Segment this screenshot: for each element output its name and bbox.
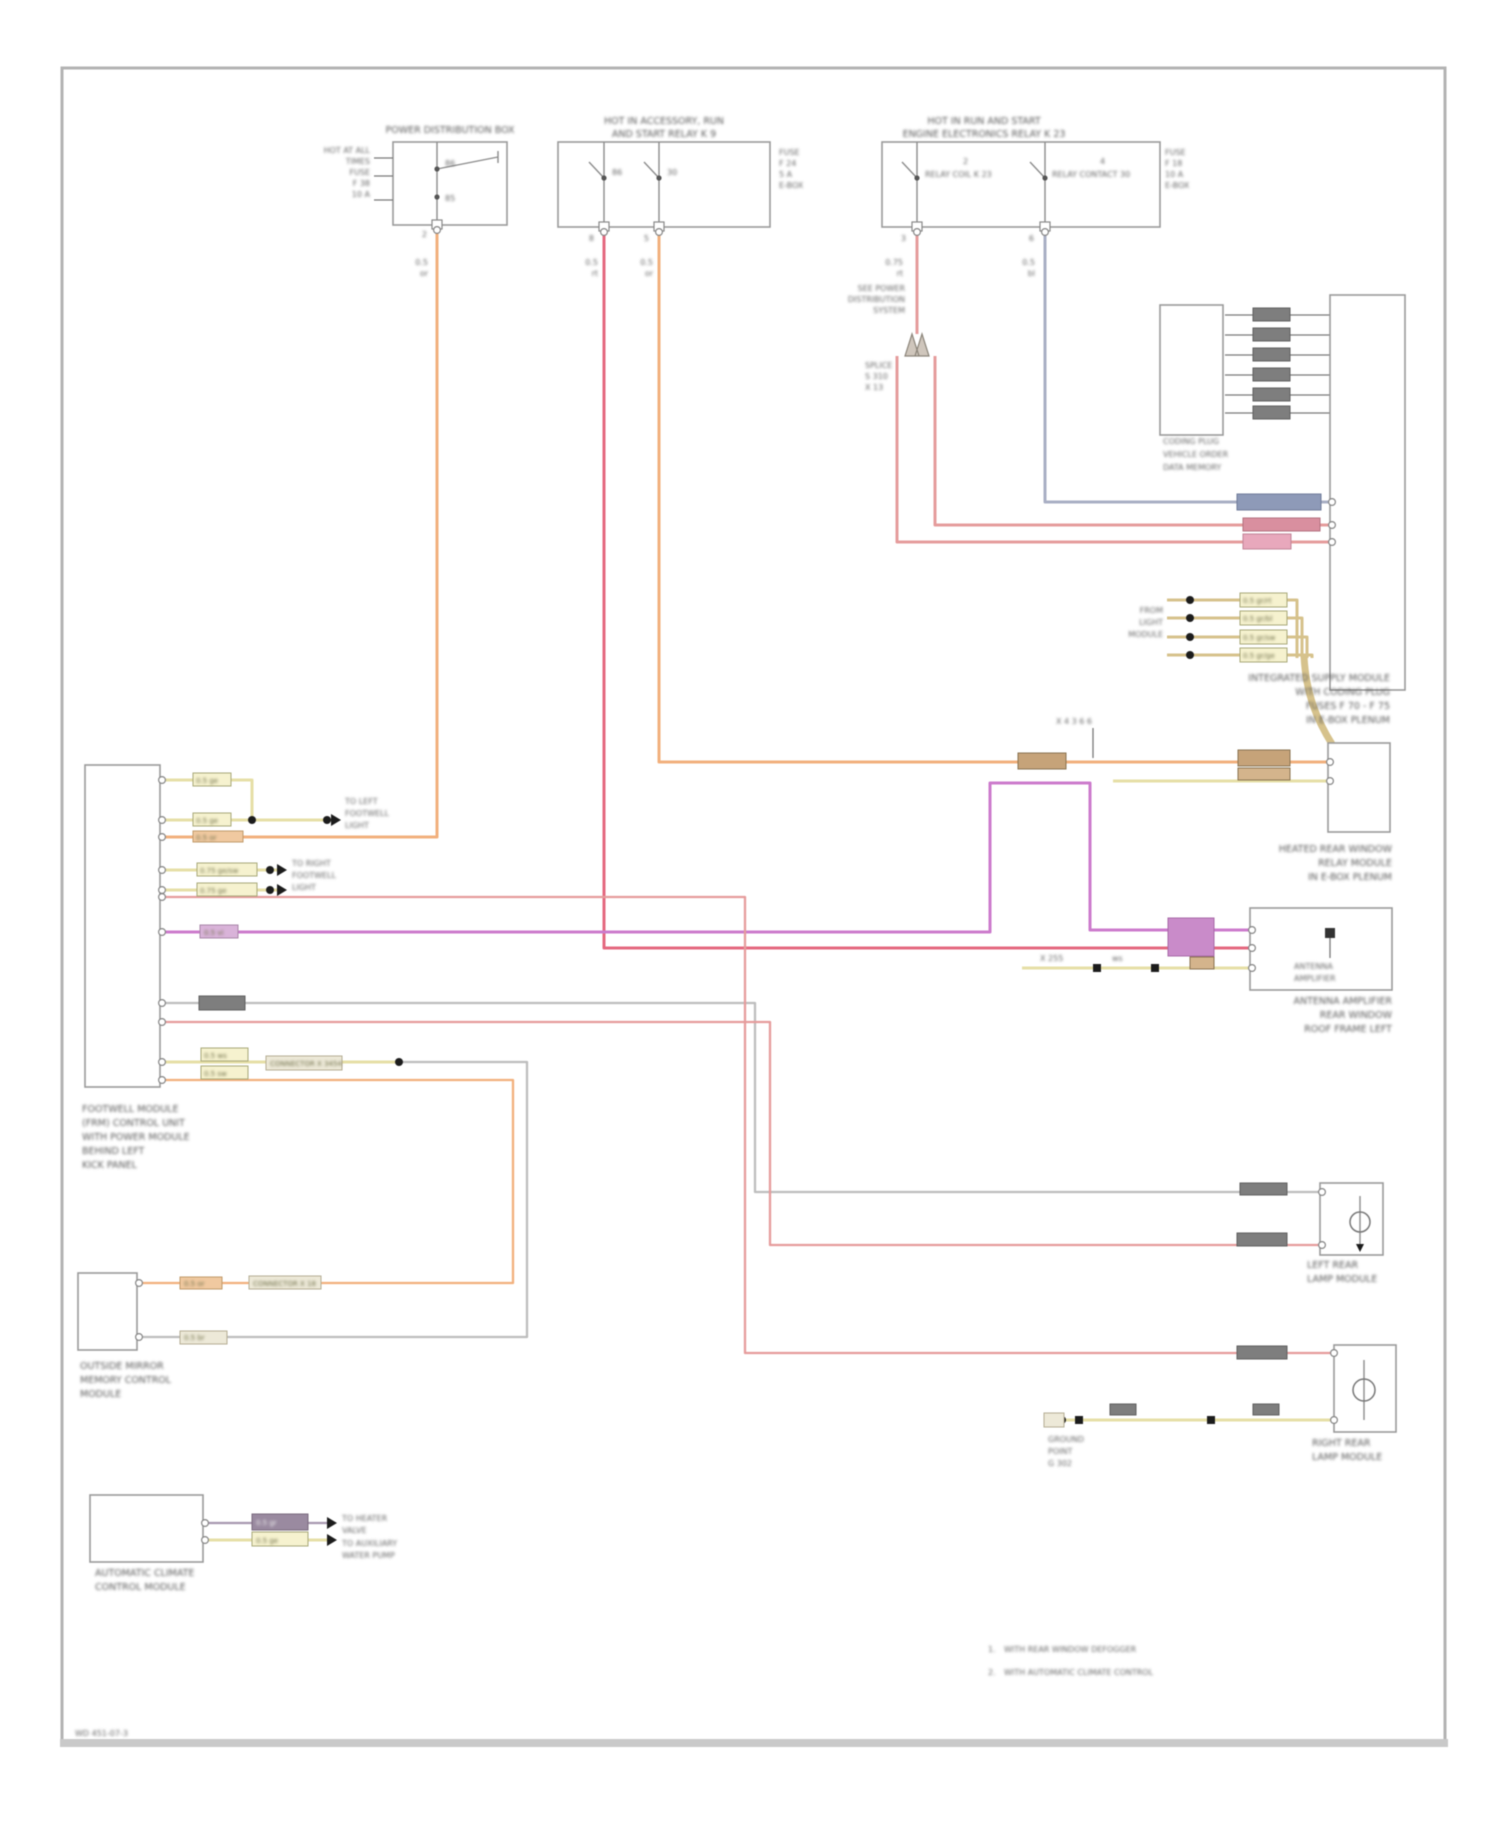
modE-caption: RELAY MODULE xyxy=(1318,858,1392,869)
wire-code-box-tan xyxy=(1238,768,1290,780)
modE-connector-label: X 4 3 6 6 xyxy=(1056,717,1092,726)
wire-gauge: 0.5 xyxy=(1022,258,1035,267)
coding-row-box xyxy=(1253,308,1290,321)
ecu-caption: FOOTWELL MODULE xyxy=(82,1104,178,1115)
integrated-supply-module xyxy=(1330,295,1405,690)
ecu-caption: (FRM) CONTROL UNIT xyxy=(82,1118,185,1129)
splice-label: X 13 xyxy=(865,383,883,392)
modH-caption: CONTROL MODULE xyxy=(95,1582,186,1593)
boxA-terminal-label: 85 xyxy=(445,194,455,203)
ecu-dest-label: FOOTWELL xyxy=(292,871,337,880)
ecu-caption: BEHIND LEFT xyxy=(82,1146,144,1157)
wire-code: 0.5 ge xyxy=(196,777,218,785)
relayC-right-label: FUSE xyxy=(1165,148,1186,157)
mirror-memory-module-box xyxy=(78,1273,137,1350)
ecu-dest-label: TO RIGHT xyxy=(291,859,331,868)
wire-code-box xyxy=(1253,1404,1279,1415)
relayC-ref-label: SYSTEM xyxy=(873,306,905,315)
wire-color: or xyxy=(645,269,654,278)
power-distribution-box xyxy=(393,142,507,225)
boxA-contact-dot1 xyxy=(434,166,439,171)
wire-color: bl xyxy=(1028,269,1035,278)
left-rear-lamp-module xyxy=(1320,1183,1383,1255)
modH-dest-label: WATER PUMP xyxy=(342,1551,395,1560)
engine-electronics-relay-box xyxy=(882,142,1160,227)
modH-caption: AUTOMATIC CLIMATE xyxy=(95,1568,194,1579)
wire-code: 0.5 gr/sw xyxy=(1243,634,1276,642)
wire-gauge: 0.5 xyxy=(585,258,598,267)
wire-code-box-blue xyxy=(1237,494,1321,510)
wire-orange-boxA-to-ecu xyxy=(162,231,437,837)
relayC-dot2 xyxy=(1042,175,1047,180)
legend-text: WITH REAR WINDOW DEFOGGER xyxy=(1004,1645,1137,1654)
wire-magenta-ecu-to-antenna xyxy=(162,783,1252,932)
relayB-terminal: 30 xyxy=(667,168,677,177)
boxA-side-label: FUSE xyxy=(349,168,370,177)
diagram-id: WD 451-07-3 xyxy=(75,1729,128,1738)
relayB-caption: HOT IN ACCESSORY, RUN xyxy=(604,116,724,127)
modG-inner-label: AMPLIFIER xyxy=(1294,974,1336,983)
wire-code-box-pink xyxy=(1243,534,1291,549)
legend-number: 1. xyxy=(988,1645,996,1654)
boxA-leader-lines xyxy=(374,158,393,200)
tanrow-left-label: MODULE xyxy=(1128,630,1163,639)
fbox-caption: INTEGRATED SUPPLY MODULE xyxy=(1248,673,1390,684)
relayB-pin-number: 5 xyxy=(644,234,649,243)
wire-code: 0.5 or xyxy=(196,834,217,842)
tanrow-left-label: LIGHT xyxy=(1139,618,1163,627)
relayC-terminal: 4 xyxy=(1100,157,1105,166)
wire-gauge: 0.5 xyxy=(415,258,428,267)
boxA-side-label: 10 A xyxy=(352,190,371,199)
antenna-icon xyxy=(1325,928,1335,938)
ecu-dest-label: LIGHT xyxy=(292,883,316,892)
relayC-caption: HOT IN RUN AND START xyxy=(927,116,1040,127)
rear-window-relay-module xyxy=(1328,743,1390,832)
modD-caption: RIGHT REAR xyxy=(1312,1438,1371,1449)
splice-label: S 310 xyxy=(865,372,888,381)
wire-code-box xyxy=(1110,1404,1136,1415)
wire-code: 0.75 ge xyxy=(200,887,227,895)
wire-code: 0.5 sw xyxy=(204,1070,227,1078)
boxA-side-label: F 38 xyxy=(353,179,370,188)
modE-caption: IN E-BOX PLENUM xyxy=(1308,872,1392,883)
relayC-ref-label: DISTRIBUTION xyxy=(848,295,905,304)
climate-control-module-box xyxy=(90,1495,203,1562)
modD-caption: LAMP MODULE xyxy=(1312,1452,1382,1463)
splice-label: SPLICE xyxy=(865,361,892,370)
relayB-terminal: 86 xyxy=(612,168,622,177)
relayB-dot1 xyxy=(601,175,606,180)
relayB-pin-number: 8 xyxy=(589,234,594,243)
relayC-pin-number: 3 xyxy=(901,234,906,243)
relayB-right-label: E-BOX xyxy=(779,181,804,190)
coding-plug-caption: DATA MEMORY xyxy=(1163,463,1221,472)
ground-label: POINT xyxy=(1048,1447,1072,1456)
tan-rows-left xyxy=(1167,600,1240,655)
coding-row-box xyxy=(1253,368,1290,381)
tan-rows-right xyxy=(1287,600,1312,658)
relayC-dot1 xyxy=(914,175,919,180)
right-rear-lamp-module xyxy=(1334,1345,1396,1432)
coding-plug-caption: VEHICLE ORDER xyxy=(1163,450,1229,459)
wiring-diagram: POWER DISTRIBUTION BOX HOT AT ALL TIMES … xyxy=(0,0,1500,1828)
modG-caption: ANTENNA AMPLIFIER xyxy=(1293,996,1392,1007)
modH-dest-label: VALVE xyxy=(342,1526,367,1535)
fbox-caption: IN E-BOX PLENUM xyxy=(1306,715,1390,726)
wire-code: 0.5 vi xyxy=(204,929,224,937)
wire-gauge: 0.5 xyxy=(640,258,653,267)
wire-code-box-tan xyxy=(1018,753,1066,769)
wire-gray-ecu-to-modC xyxy=(162,1003,1322,1192)
tan-bundle xyxy=(1304,656,1332,744)
wire-code-box xyxy=(199,996,245,1010)
wire-code-box xyxy=(1237,1233,1287,1246)
wire-color: rt xyxy=(897,269,903,278)
ecu-dest-label: LIGHT xyxy=(345,821,369,830)
relayB-dot2 xyxy=(656,175,661,180)
modG-caption: ROOF FRAME LEFT xyxy=(1304,1024,1392,1035)
modG-caption: REAR WINDOW xyxy=(1320,1010,1393,1021)
modG-connector-label: X 255 xyxy=(1040,954,1063,963)
wire-code-box xyxy=(1240,1183,1287,1195)
wire-code: 0.5 or xyxy=(184,1280,205,1288)
tanrow-left-label: FROM xyxy=(1140,606,1163,615)
relayB-right-label: FUSE xyxy=(779,148,800,157)
boxA-side-label: TIMES xyxy=(345,157,370,166)
relayB-caption: AND START RELAY K 9 xyxy=(612,129,716,140)
ecu-caption: WITH POWER MODULE xyxy=(82,1132,190,1143)
ground-label: G 302 xyxy=(1048,1459,1072,1468)
border-bottom-band xyxy=(60,1739,1448,1747)
wire-code: 0.5 ws xyxy=(204,1052,227,1060)
connector-label: CONNECTOR X 3454 xyxy=(270,1060,342,1068)
coding-plug-caption: CODING PLUG xyxy=(1163,437,1219,446)
relayC-pin-number: 6 xyxy=(1029,234,1034,243)
wire-code: 0.5 gr xyxy=(256,1519,277,1527)
wire-color: rt xyxy=(592,269,598,278)
wire-code: 0.5 gr/ge xyxy=(1243,652,1275,660)
component-boxes xyxy=(78,142,1405,1562)
modH-dest-label: TO AUXILIARY xyxy=(341,1539,397,1548)
wire-code-box xyxy=(1237,1346,1287,1359)
relayC-caption: ENGINE ELECTRONICS RELAY K 23 xyxy=(903,129,1066,140)
ecu-dest-label: TO LEFT xyxy=(344,797,378,806)
relayB-right-label: F 24 xyxy=(779,159,796,168)
boxA-contact-dot2 xyxy=(434,194,439,199)
wire-code: 0.5 gr/bl xyxy=(1243,615,1272,623)
ground-terminal-box xyxy=(1044,1413,1064,1427)
wire-crimson-relayB-to-antenna xyxy=(604,233,1252,948)
connector-label: CONNECTOR X 18 xyxy=(253,1280,316,1288)
boxA-terminal-label: 86 xyxy=(445,159,455,168)
accessory-relay-box xyxy=(558,142,770,227)
relayC-coil-label: RELAY COIL K 23 xyxy=(925,170,992,179)
splice-symbol xyxy=(905,334,929,356)
wiring-diagram-page: POWER DISTRIBUTION BOX HOT AT ALL TIMES … xyxy=(0,0,1500,1828)
fbox-caption: FUSES F 70 - F 75 xyxy=(1306,701,1390,712)
wire-code-box-magenta xyxy=(1168,918,1214,956)
wire-gauge: 0.75 xyxy=(885,258,903,267)
wire-code-box-red xyxy=(1243,518,1320,531)
relayB-right-label: 5 A xyxy=(779,170,793,179)
splices-and-arrows xyxy=(248,596,1215,1546)
relayC-contact-label: RELAY CONTACT 30 xyxy=(1052,170,1130,179)
wire-orange-loop-to-mirror-module xyxy=(139,1080,513,1283)
ecu-dest-label: FOOTWELL xyxy=(345,809,390,818)
coding-plug-box xyxy=(1160,305,1223,435)
wire-code: 0.75 ge/sw xyxy=(200,867,239,875)
wire-code-box-tan xyxy=(1238,750,1290,766)
legend-text: WITH AUTOMATIC CLIMATE CONTROL xyxy=(1004,1668,1154,1677)
wire-color: or xyxy=(420,269,429,278)
wire-orange-relayB-to-modE xyxy=(659,233,1330,762)
coding-row-box xyxy=(1253,328,1290,341)
boxA-side-label: HOT AT ALL xyxy=(324,146,371,155)
relayC-ref-label: SEE POWER xyxy=(858,284,906,293)
modH-dest-label: TO HEATER xyxy=(341,1514,388,1523)
ecu-caption: KICK PANEL xyxy=(82,1160,138,1171)
mirror-module-caption: MEMORY CONTROL xyxy=(80,1375,172,1386)
wire-gray-loop-to-mirror-module xyxy=(139,1062,527,1337)
wire-label-boxes xyxy=(180,308,1321,1546)
modC-caption: LAMP MODULE xyxy=(1307,1274,1377,1285)
ground-label: GROUND xyxy=(1048,1435,1084,1444)
legend-number: 2. xyxy=(988,1668,996,1677)
modE-caption: HEATED REAR WINDOW xyxy=(1279,844,1393,855)
wire-red-splice-out2 xyxy=(897,356,1332,542)
coding-row-box xyxy=(1253,388,1290,401)
boxA-pin-number: 2 xyxy=(422,230,427,239)
wire-code: 0.5 ge xyxy=(196,817,218,825)
wire-code: 0.5 br xyxy=(184,1334,205,1342)
mirror-module-caption: MODULE xyxy=(80,1389,121,1400)
relayC-right-label: F 18 xyxy=(1165,159,1182,168)
relayC-right-label: E-BOX xyxy=(1165,181,1190,190)
relayC-right-label: 10 A xyxy=(1165,170,1184,179)
wire-code-box xyxy=(1190,957,1214,969)
relayC-terminal: 2 xyxy=(963,157,968,166)
page-border xyxy=(60,68,1448,1747)
wire-code: 0.5 ge xyxy=(256,1537,278,1545)
wire-code: 0.5 gr/rt xyxy=(1243,597,1272,605)
coding-row-box xyxy=(1253,406,1290,419)
wires xyxy=(139,231,1334,1540)
modC-caption: LEFT REAR xyxy=(1307,1260,1359,1271)
modG-inner-label: ANTENNA xyxy=(1294,962,1333,971)
modG-wire-label: ws xyxy=(1112,954,1123,963)
coding-row-box xyxy=(1253,348,1290,361)
fbox-caption: WITH CODING PLUG xyxy=(1295,687,1390,698)
footwell-module-box xyxy=(85,765,160,1087)
wire-red-ecu-to-modC xyxy=(162,1022,1322,1245)
mirror-module-caption: OUTSIDE MIRROR xyxy=(80,1361,164,1372)
boxA-caption: POWER DISTRIBUTION BOX xyxy=(386,125,515,136)
